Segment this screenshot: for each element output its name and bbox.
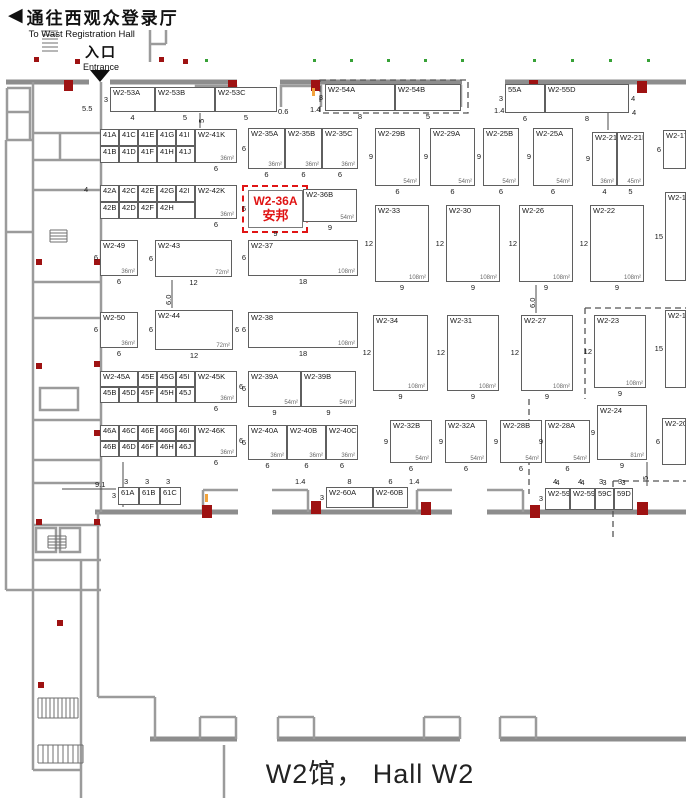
dim-label: 8: [545, 114, 629, 123]
booth-label: W2-59A: [548, 489, 570, 498]
booth-W2-21B: W2-21B45m²: [617, 132, 644, 186]
booth-41J: 41J: [176, 146, 195, 163]
booth-45F: 45F: [138, 387, 157, 403]
booth-area: 45m²: [627, 179, 641, 185]
booth-label: 42B: [103, 203, 116, 212]
dim-label: 12: [155, 278, 232, 287]
booth-42B: 42B: [100, 202, 119, 219]
booth-label: W2-54B: [398, 85, 425, 94]
entrance-label: 入口 Entrance: [68, 42, 134, 72]
dim-label: 6: [373, 477, 408, 486]
booth-W2-36A: W2-36A安邦: [248, 190, 303, 228]
booth-label: W2-21B: [620, 133, 644, 142]
booth-label: W2-34: [376, 316, 398, 325]
booth-label: W2-20: [665, 419, 686, 428]
booth-area: 54m²: [284, 400, 298, 406]
booth-label: 41H: [160, 147, 174, 156]
booth-label: W2-28A: [548, 421, 575, 430]
dim-label: 3: [599, 477, 603, 486]
booth-area: 54m²: [573, 456, 587, 462]
dim-label: 18: [248, 349, 358, 358]
dim-label: 3: [166, 477, 170, 486]
booth-label: W2-33: [378, 206, 400, 215]
booth-label: 41A: [103, 130, 116, 139]
booth-label: W2-55D: [548, 85, 576, 94]
booth-label: 42C: [122, 186, 136, 195]
dim-label: 3: [491, 94, 503, 103]
booth-area: 36m²: [220, 450, 234, 456]
dim-label: 9: [531, 437, 543, 446]
booth-W2-39A: W2-39A54m²: [248, 371, 301, 407]
dim-label: 6: [445, 464, 487, 473]
booth-label: 41D: [122, 147, 136, 156]
dim-label: 6: [430, 187, 475, 196]
booth-label: 42G: [160, 186, 174, 195]
booth-area: 108m²: [553, 275, 570, 281]
booth-label: 41I: [179, 130, 189, 139]
dim-label: 6: [234, 253, 246, 262]
dim-label: 6: [234, 204, 246, 213]
booth-label: 61B: [142, 488, 155, 497]
dim-label: 9: [578, 154, 590, 163]
dim-label: 6: [483, 187, 519, 196]
booth-W2-59B: W2-59B: [570, 488, 595, 510]
booth-41H: 41H: [157, 146, 176, 163]
booth-W2-40A: W2-40A36m²: [248, 425, 287, 460]
dim-label: 6: [195, 220, 237, 229]
booth-label: 42E: [141, 186, 154, 195]
booth-label: 46B: [103, 442, 116, 451]
entrance-label-cn: 入口: [68, 42, 134, 62]
dim-label: 4: [631, 94, 635, 103]
dim-label: 5: [641, 476, 650, 480]
booth-label: W2-44: [158, 311, 180, 320]
booth-label: 46H: [160, 442, 174, 451]
booth-label: W2-32A: [448, 421, 475, 430]
booth-label: W2-40A: [251, 426, 278, 435]
booth-area: 108m²: [338, 341, 355, 347]
dim-label: 9: [486, 437, 498, 446]
booth-label: 61C: [163, 488, 177, 497]
booth-label: W2-45A: [103, 372, 130, 381]
dim-label: 15: [651, 232, 663, 241]
booth-55A: 55A: [505, 84, 545, 113]
booth-label: W2-29B: [378, 129, 405, 138]
booth-area: 36m²: [220, 396, 234, 402]
booth-label: W2-59B: [573, 489, 595, 498]
dim-label: 3: [145, 477, 149, 486]
dim-label: 4: [592, 187, 617, 196]
booth-area: 108m²: [624, 275, 641, 281]
booth-label: W2-37: [251, 241, 273, 250]
booth-label: 41E: [141, 130, 154, 139]
booth-label: W2-35C: [325, 129, 353, 138]
booth-46A: 46A: [100, 425, 119, 441]
dim-label: 6: [195, 404, 237, 413]
booth-label: W2-53A: [113, 88, 140, 97]
dim-label: 9: [301, 408, 356, 417]
dim-label: 6: [234, 325, 246, 334]
dim-label: 6: [248, 170, 285, 179]
booth-label: W2-36A: [253, 194, 297, 208]
dim-label: 9: [416, 152, 428, 161]
booth-label: 59C: [598, 489, 612, 498]
booth-46J: 46J: [176, 441, 195, 457]
booth-label: W2-40B: [290, 426, 317, 435]
booth-area: 81m²: [630, 453, 644, 459]
booth-area: 36m²: [121, 269, 135, 275]
dim-label: 1.4: [409, 477, 419, 486]
booth-label: W2-54A: [328, 85, 355, 94]
dim-label: 9: [303, 223, 357, 232]
west-hall-label-en: To Wast Registration Hall: [29, 29, 179, 40]
booth-W2-30: W2-30108m²: [446, 205, 500, 282]
booth-W2-59A: W2-59A: [545, 488, 570, 510]
booth-label: 59D: [617, 489, 631, 498]
booth-area: 54m²: [458, 179, 472, 185]
booth-W2-41K: W2-41K36m²: [195, 129, 237, 163]
booth-W2-37: W2-37108m²: [248, 240, 358, 276]
booth-label: W2-49: [103, 241, 125, 250]
booth-W2-40C: W2-40C36m²: [326, 425, 358, 460]
booth-label: 42A: [103, 186, 116, 195]
booth-W2-27: W2-27108m²: [521, 315, 573, 391]
booth-W2-23: W2-23108m²: [594, 315, 646, 388]
booth-area: 36m²: [341, 453, 355, 459]
booth-42G: 42G: [157, 185, 176, 202]
booth-label: W2-17: [666, 131, 686, 140]
booth-45H: 45H: [157, 387, 176, 403]
booth-W2-17: W2-17: [663, 130, 686, 169]
dim-label: 9: [519, 152, 531, 161]
booth-W2-25A: W2-25A54m²: [533, 128, 573, 186]
booth-W2-53A: W2-53A: [110, 87, 155, 112]
booth-area: 108m²: [553, 384, 570, 390]
dim-label: 6: [248, 461, 287, 470]
dim-label: 6: [285, 170, 322, 179]
booth-W2-19: W2-19: [665, 310, 686, 388]
booth-label: W2-29A: [433, 129, 460, 138]
dim-label: 5: [215, 113, 277, 122]
booth-59C: 59C: [595, 488, 614, 510]
booth-label: 42I: [179, 186, 189, 195]
dim-label: 6: [141, 254, 153, 263]
booth-41B: 41B: [100, 146, 119, 163]
booth-W2-55D: W2-55D: [545, 84, 629, 113]
booth-label: 46A: [103, 426, 116, 435]
booth-label: 45D: [122, 388, 136, 397]
dim-label: 1.4: [494, 106, 504, 115]
booth-W2-35C: W2-35C36m²: [322, 128, 358, 169]
booth-W2-36B: W2-36B54m²: [303, 189, 357, 222]
booth-label: 45B: [103, 388, 116, 397]
booth-W2-42K: W2-42K36m²: [195, 185, 237, 219]
booth-label: 45J: [179, 388, 191, 397]
dim-label: 12: [359, 348, 371, 357]
booth-W2-20: W2-20: [662, 418, 686, 465]
booth-41G: 41G: [157, 129, 176, 146]
booth-W2-24: W2-2481m²: [597, 405, 647, 460]
booth-label: W2-39B: [304, 372, 331, 381]
exhibition-floorplan: W2-53AW2-53BW2-53CW2-54AW2-54B55AW2-55DW…: [0, 0, 686, 801]
booth-61C: 61C: [160, 487, 181, 505]
dim-label: 4: [110, 113, 155, 122]
booth-label: 46E: [141, 426, 154, 435]
dim-label: 6: [86, 325, 98, 334]
booth-W2-25B: W2-25B54m²: [483, 128, 519, 186]
booth-label: W2-35B: [288, 129, 315, 138]
booth-label: 45I: [179, 372, 189, 381]
booth-W2-53C: W2-53C: [215, 87, 277, 112]
booth-42E: 42E: [138, 185, 157, 202]
booth-61B: 61B: [139, 487, 160, 505]
booth-label: 41C: [122, 130, 136, 139]
booth-area: 54m²: [415, 456, 429, 462]
booth-41D: 41D: [119, 146, 138, 163]
dim-label: 1.4: [295, 477, 305, 486]
booth-label: W2-40C: [329, 426, 357, 435]
dim-label: 6: [649, 145, 661, 154]
booth-label: 46I: [179, 426, 189, 435]
dim-label: 15: [651, 344, 663, 353]
booth-W2-40B: W2-40B36m²: [287, 425, 326, 460]
booth-label: W2-26: [522, 206, 544, 215]
booth-46E: 46E: [138, 425, 157, 441]
booth-W2-50: W2-5036m²: [100, 312, 138, 348]
dim-label: 9: [594, 389, 646, 398]
booth-area: 108m²: [408, 384, 425, 390]
booth-label: 41G: [160, 130, 174, 139]
booth-label: W2-19: [668, 311, 686, 320]
booth-46H: 46H: [157, 441, 176, 457]
dim-label: 6: [533, 187, 573, 196]
dim-label: 6: [100, 349, 138, 358]
booth-45J: 45J: [176, 387, 195, 403]
booth-label: W2-36B: [306, 190, 333, 199]
booth-label: 42F: [141, 203, 154, 212]
booth-label: 61A: [121, 488, 134, 497]
dim-label: 6: [505, 114, 545, 123]
dim-label: 6: [100, 277, 138, 286]
booth-59D: 59D: [614, 488, 633, 510]
booth-41C: 41C: [119, 129, 138, 146]
dim-label: 6.0: [164, 295, 173, 305]
booth-W2-33: W2-33108m²: [375, 205, 429, 282]
dim-label: 18: [248, 277, 358, 286]
dim-label: 9: [373, 392, 428, 401]
dim-label: 9: [583, 428, 595, 437]
booth-W2-60B: W2-60B: [373, 487, 408, 508]
dim-label: 12: [433, 348, 445, 357]
dim-label: 3: [96, 95, 108, 104]
booth-label: 41F: [141, 147, 154, 156]
dim-label: 3: [124, 477, 128, 486]
dim-label: 6: [648, 437, 660, 446]
booth-label: W2-23: [597, 316, 619, 325]
booth-label: W2-45K: [198, 372, 225, 381]
hall-title: W2馆， Hall W2: [140, 752, 600, 791]
booth-W2-29B: W2-29B54m²: [375, 128, 420, 186]
dim-label: 9: [521, 392, 573, 401]
booth-W2-34: W2-34108m²: [373, 315, 428, 391]
booth-41A: 41A: [100, 129, 119, 146]
booth-label: W2-53C: [218, 88, 246, 97]
west-hall-label-cn: 通往西观众登录厅: [27, 4, 179, 29]
booth-45D: 45D: [119, 387, 138, 403]
booth-46I: 46I: [176, 425, 195, 441]
booth-W2-18: W2-18: [665, 192, 686, 281]
booth-label: 55A: [508, 85, 521, 94]
booth-area: 36m²: [268, 162, 282, 168]
booth-label: W2-24: [600, 406, 622, 415]
booth-area: 72m²: [216, 343, 230, 349]
dim-label: 1.4: [310, 105, 320, 114]
dim-label: 9: [248, 229, 303, 238]
booth-area: 36m²: [600, 179, 614, 185]
dim-label: 5: [395, 112, 461, 121]
dim-label: 9: [597, 461, 647, 470]
dim-label: 6: [375, 187, 420, 196]
booth-area: 54m²: [556, 179, 570, 185]
dim-label: 3: [614, 478, 633, 487]
booth-area: 54m²: [340, 215, 354, 221]
booth-label: W2-46K: [198, 426, 225, 435]
booth-label: 45H: [160, 388, 174, 397]
west-hall-exit: ◀ 通往西观众登录厅 To Wast Registration Hall: [8, 4, 179, 40]
dim-label: 0.6: [278, 107, 288, 116]
booth-label: 45F: [141, 388, 154, 397]
dim-label: 4: [553, 477, 557, 486]
booth-label: 41B: [103, 147, 116, 156]
booth-W2-35A: W2-35A36m²: [248, 128, 285, 169]
booth-label: W2-21A: [595, 133, 617, 142]
booth-area: 54m²: [525, 456, 539, 462]
dim-label: 6: [326, 461, 358, 470]
dim-label: 6: [86, 253, 98, 262]
booth-42C: 42C: [119, 185, 138, 202]
dim-label: 3: [618, 477, 622, 486]
booth-46F: 46F: [138, 441, 157, 457]
dim-label: 6: [195, 164, 237, 173]
booth-46B: 46B: [100, 441, 119, 457]
dim-label: 12: [155, 351, 233, 360]
booth-45B: 45B: [100, 387, 119, 403]
dim-label: 8: [325, 112, 395, 121]
booth-area: 54m²: [502, 179, 516, 185]
booth-45I: 45I: [176, 371, 195, 387]
dim-label: 9: [248, 408, 301, 417]
booth-label: 42H: [160, 203, 174, 212]
booth-42D: 42D: [119, 202, 138, 219]
booth-42H: 42H: [157, 202, 195, 219]
booth-area: 108m²: [480, 275, 497, 281]
booth-area: 36m²: [309, 453, 323, 459]
booth-41F: 41F: [138, 146, 157, 163]
booth-label: 42D: [122, 203, 136, 212]
dim-label: 4: [632, 108, 636, 117]
left-arrow-icon: ◀: [8, 4, 23, 28]
booth-W2-39B: W2-39B54m²: [301, 371, 356, 407]
booth-W2-31: W2-31108m²: [447, 315, 499, 391]
dim-label: 5: [617, 187, 644, 196]
dim-label: 4: [578, 477, 582, 486]
dim-label: 4: [570, 478, 595, 487]
booth-area: 36m²: [220, 156, 234, 162]
booth-label: 46G: [160, 426, 174, 435]
booth-W2-49: W2-4936m²: [100, 240, 138, 276]
booth-label: W2-27: [524, 316, 546, 325]
booth-area: 54m²: [403, 179, 417, 185]
booth-label: W2-30: [449, 206, 471, 215]
booth-label: W2-18: [668, 193, 686, 202]
booth-label: W2-60B: [376, 488, 403, 497]
booth-area: 36m²: [305, 162, 319, 168]
booth-area: 108m²: [409, 275, 426, 281]
dim-label: 12: [505, 239, 517, 248]
booth-label: W2-60A: [329, 488, 356, 497]
booth-label: 45E: [141, 372, 154, 381]
booth-label: W2-25A: [536, 129, 563, 138]
booth-42I: 42I: [176, 185, 195, 202]
booth-45E: 45E: [138, 371, 157, 387]
booth-area: 36m²: [341, 162, 355, 168]
booth-W2-60A: W2-60A: [326, 487, 373, 508]
dim-label: 12: [580, 347, 592, 356]
dim-label: 9: [590, 283, 644, 292]
dim-label: 12: [432, 239, 444, 248]
booth-W2-45K: W2-45K36m²: [195, 371, 237, 403]
dim-label: 6: [141, 325, 153, 334]
dim-label: 6: [500, 464, 542, 473]
booth-W2-54B: W2-54B: [395, 84, 461, 111]
booth-label: 46D: [122, 442, 136, 451]
booth-label: W2-42K: [198, 186, 225, 195]
dim-label: 3: [531, 494, 543, 503]
dim-label: 9: [446, 283, 500, 292]
dim-label: 5: [197, 119, 206, 123]
booth-label: W2-50: [103, 313, 125, 322]
booth-label: W2-41K: [198, 130, 225, 139]
booth-46D: 46D: [119, 441, 138, 457]
booth-area: 108m²: [626, 381, 643, 387]
dim-label: 3: [104, 491, 116, 500]
booth-W2-44: W2-4472m²: [155, 310, 233, 350]
dim-label: 6: [545, 464, 590, 473]
booth-W2-35B: W2-35B36m²: [285, 128, 322, 169]
dim-label: 9: [376, 437, 388, 446]
dim-label: 6: [195, 458, 237, 467]
dim-label: 9: [519, 283, 573, 292]
dim-label: 12: [576, 239, 588, 248]
entrance-marker-icon: [90, 70, 110, 82]
dim-label: 6: [234, 144, 246, 153]
booth-W2-53B: W2-53B: [155, 87, 215, 112]
booth-label: W2-28B: [503, 421, 530, 430]
booth-46G: 46G: [157, 425, 176, 441]
booth-W2-54A: W2-54A: [325, 84, 395, 111]
booth-area: 72m²: [215, 270, 229, 276]
dim-label: 5: [155, 113, 215, 122]
booth-label: W2-31: [450, 316, 472, 325]
booth-label: W2-38: [251, 313, 273, 322]
booth-area: 36m²: [121, 341, 135, 347]
dim-label: 6: [239, 382, 243, 391]
booth-label: W2-35A: [251, 129, 278, 138]
booth-W2-21A: W2-21A36m²: [592, 132, 617, 186]
booth-46C: 46C: [119, 425, 138, 441]
booth-41I: 41I: [176, 129, 195, 146]
booth-45G: 45G: [157, 371, 176, 387]
